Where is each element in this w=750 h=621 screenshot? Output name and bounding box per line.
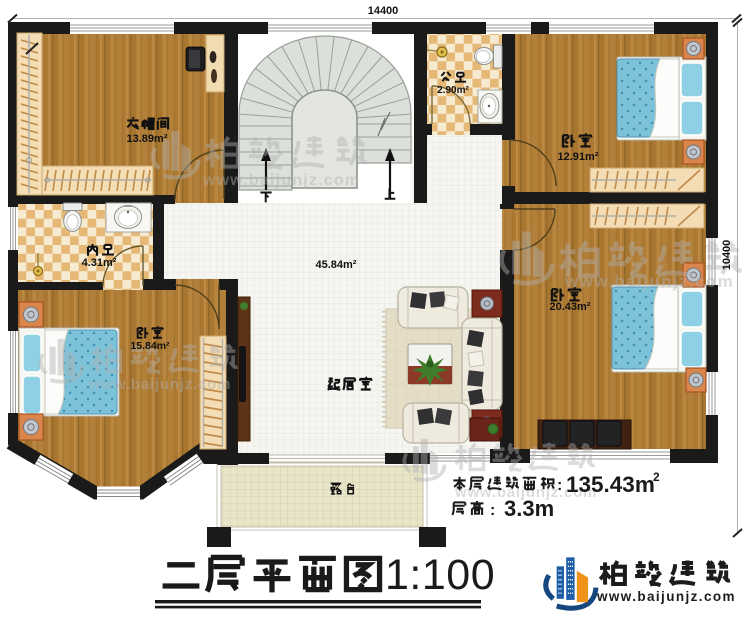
svg-text:13.89m²: 13.89m² (127, 133, 168, 145)
svg-text:1:100: 1:100 (385, 551, 495, 599)
svg-text:www.baijunjz.com: www.baijunjz.com (596, 589, 736, 604)
svg-text:www.baijunjz.com: www.baijunjz.com (202, 172, 360, 189)
svg-text::: : (490, 502, 495, 519)
svg-text:4.31m²: 4.31m² (82, 257, 117, 269)
svg-text:15.84m²: 15.84m² (130, 340, 170, 352)
svg-text:45.84m²: 45.84m² (316, 259, 357, 271)
svg-text::: : (557, 477, 562, 494)
svg-text:www.baijunjz.com: www.baijunjz.com (88, 376, 231, 393)
svg-text:10400: 10400 (721, 240, 733, 271)
svg-text:12.91m²: 12.91m² (558, 151, 599, 163)
svg-text:2: 2 (653, 470, 660, 484)
svg-text:3.3m: 3.3m (504, 496, 554, 521)
svg-text:135.43m: 135.43m (566, 472, 655, 497)
svg-text:www.baijunjz.com: www.baijunjz.com (564, 272, 734, 291)
svg-text:14400: 14400 (368, 5, 399, 17)
svg-text:2.90m²: 2.90m² (437, 85, 469, 96)
svg-text:20.43m²: 20.43m² (550, 301, 591, 313)
